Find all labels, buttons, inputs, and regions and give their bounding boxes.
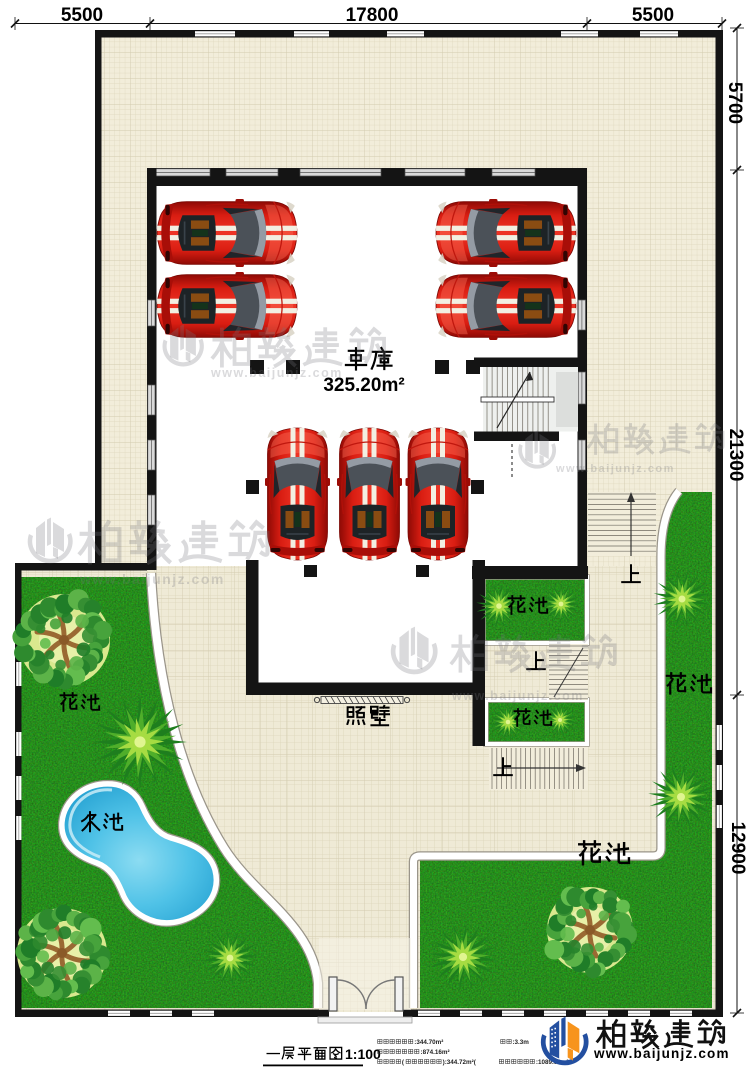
svg-text:5700: 5700: [724, 82, 745, 124]
svg-text:1:100: 1:100: [345, 1046, 381, 1062]
svg-text:www.baijunjz.com: www.baijunjz.com: [79, 571, 225, 587]
svg-text:5500: 5500: [61, 5, 103, 26]
svg-text::344.70m²: :344.70m²: [414, 1039, 443, 1046]
svg-text:www.baijunjz.com: www.baijunjz.com: [210, 366, 343, 380]
svg-text::3.3m: :3.3m: [512, 1039, 529, 1046]
svg-text:www.baijunjz.com: www.baijunjz.com: [451, 689, 584, 703]
svg-text::874.16m²: :874.16m²: [421, 1049, 450, 1056]
svg-text:12900: 12900: [727, 822, 748, 875]
svg-text:www.baijunjz.com: www.baijunjz.com: [555, 463, 675, 475]
svg-text:17800: 17800: [346, 5, 399, 26]
svg-text:21300: 21300: [725, 429, 746, 482]
svg-text:):344.72m²(: ):344.72m²(: [443, 1059, 477, 1066]
svg-text:5500: 5500: [632, 5, 674, 26]
svg-text:(: (: [402, 1059, 405, 1066]
svg-text:www.baijunjz.com: www.baijunjz.com: [593, 1046, 730, 1061]
